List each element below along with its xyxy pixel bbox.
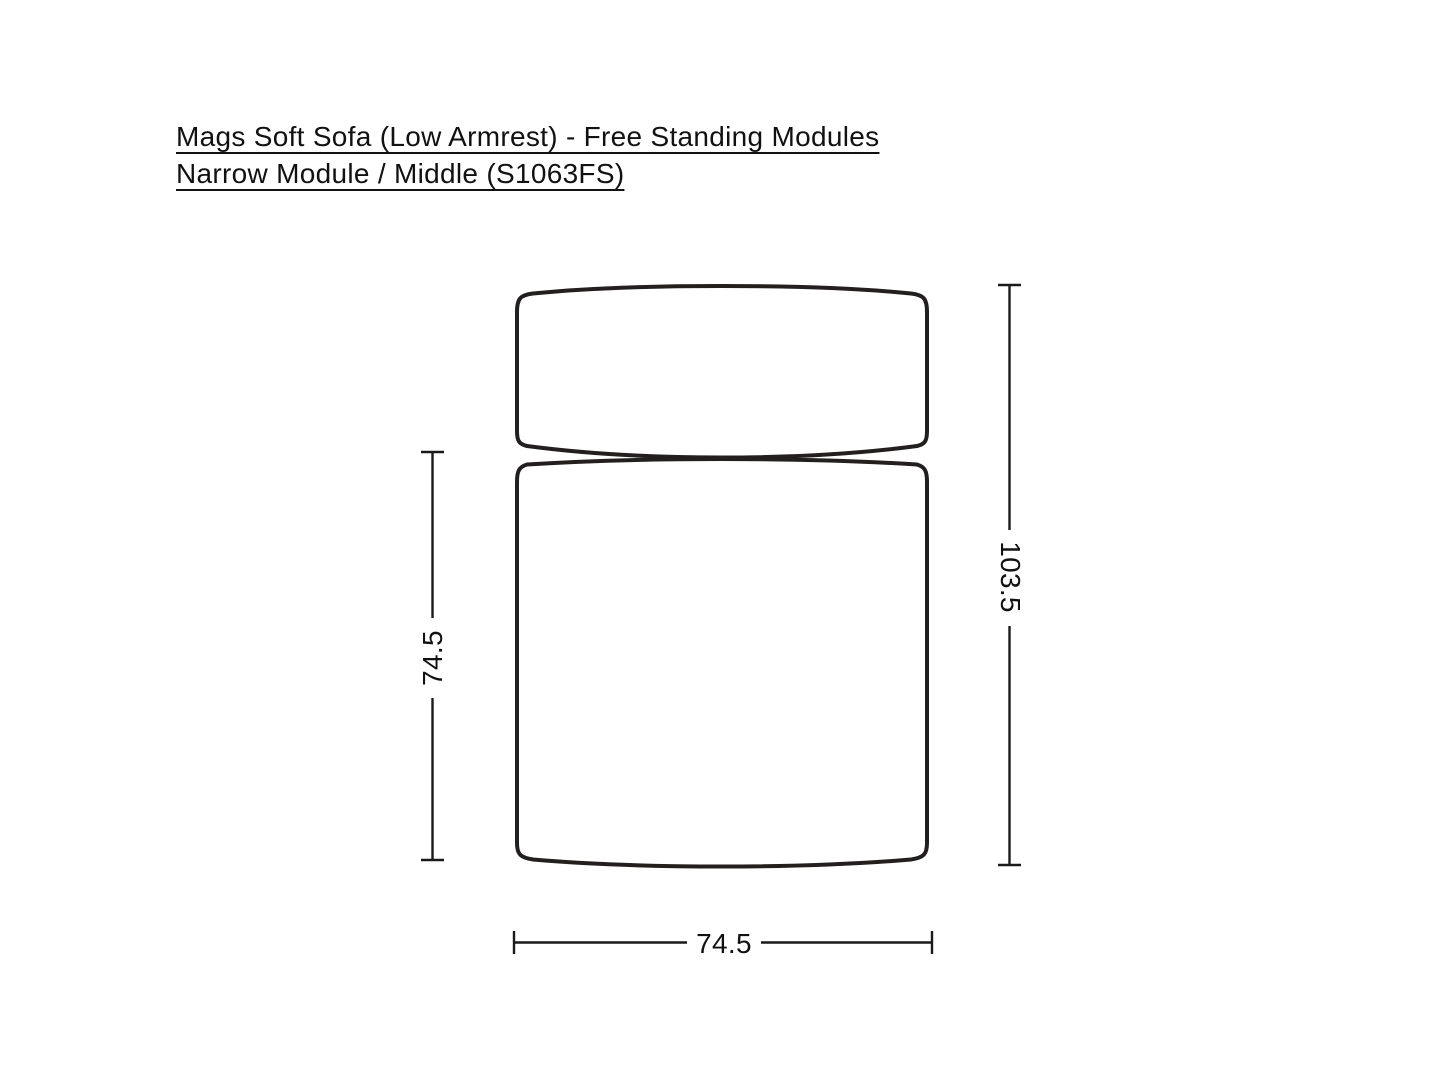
sofa-module-top-view-drawing [0,0,1445,1087]
total-depth-label: 103.5 [994,541,1026,613]
width-label: 74.5 [696,928,752,960]
product-spec-page: Mags Soft Sofa (Low Armrest) - Free Stan… [0,0,1445,1087]
backrest-outline [517,286,927,458]
seat-depth-label: 74.5 [417,630,449,686]
seat-outline [517,459,927,867]
